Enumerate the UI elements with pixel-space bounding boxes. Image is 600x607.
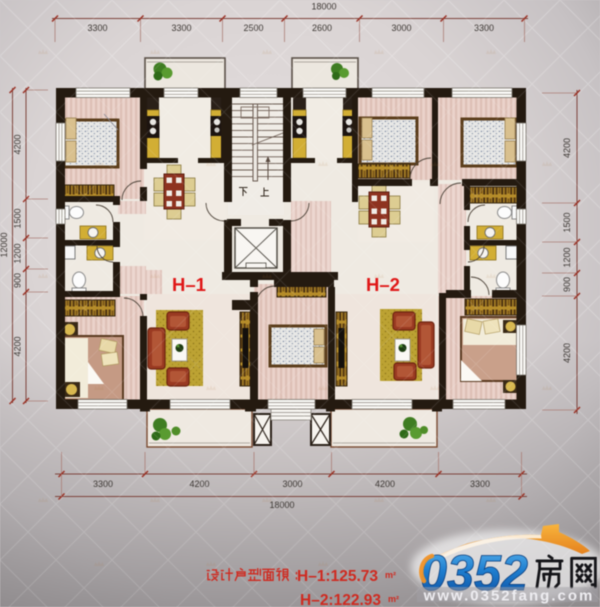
svg-text:H–2:122.93: H–2:122.93 — [300, 592, 381, 607]
svg-text:m²: m² — [388, 594, 399, 604]
svg-text:H–1:125.73: H–1:125.73 — [297, 568, 378, 585]
svg-text:m²: m² — [385, 570, 396, 580]
svg-text:H–1: H–1 — [172, 274, 206, 295]
svg-text:H–2: H–2 — [366, 274, 400, 295]
svg-text:www.0352fang.com: www.0352fang.com — [423, 588, 595, 605]
